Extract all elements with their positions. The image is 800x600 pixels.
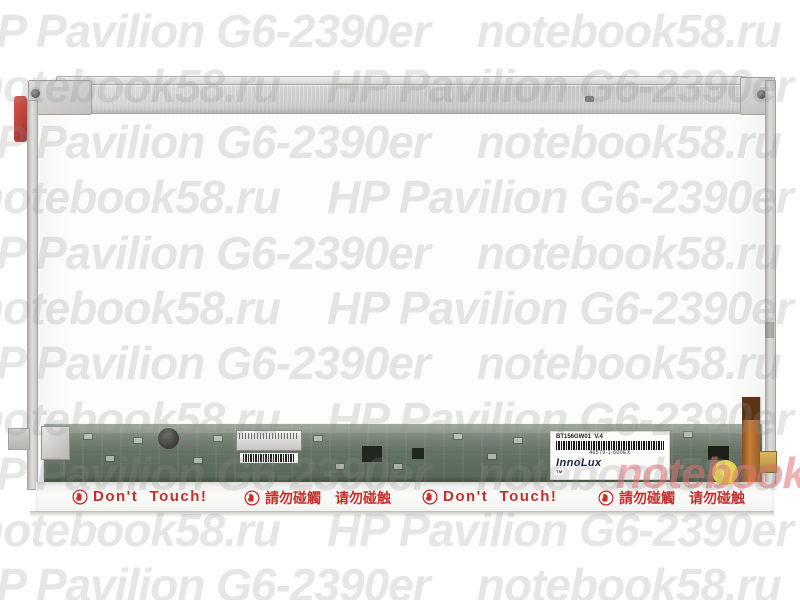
warning-text: Don't Touch! xyxy=(93,488,207,505)
left-mount-tab xyxy=(8,428,30,450)
dont-touch-hand-icon xyxy=(72,489,88,505)
panel-bottom-shadow xyxy=(30,511,774,517)
smd-pad xyxy=(514,438,522,443)
smd-pad xyxy=(106,456,114,461)
smd-pad xyxy=(488,454,496,459)
screw-hole-left-icon xyxy=(31,89,40,98)
smd-pad xyxy=(684,432,692,437)
smd-pad xyxy=(336,464,344,469)
smd-pad xyxy=(454,434,462,439)
smd-pad xyxy=(214,436,222,441)
warning-item: Don't Touch! xyxy=(72,488,207,505)
warning-item: Don't Touch! xyxy=(422,488,557,505)
dont-touch-hand-icon xyxy=(598,490,614,506)
smd-pad xyxy=(84,434,92,439)
coil-component xyxy=(158,428,179,449)
lvds-connector xyxy=(236,430,302,451)
rail-notch xyxy=(765,322,774,338)
emi-shield xyxy=(41,426,70,460)
ic-chip xyxy=(412,448,424,459)
lcd-panel-product-photo: BT156GW01 V.4 46579-1-600EX InnoLuxTM Do… xyxy=(0,0,800,600)
warning-item: 請勿碰觸 请勿碰触 xyxy=(244,488,391,508)
watermark-row: HP Pavilion G6-2390er notebook58.ru xyxy=(0,8,781,54)
label-model-text: BT156GW01 V.4 xyxy=(556,434,664,440)
bracket-smudge xyxy=(585,96,594,102)
watermark-row: HP Pavilion G6-2390er notebook58.ru xyxy=(0,562,781,600)
smd-pad xyxy=(394,464,402,469)
warning-text: 請勿碰觸 请勿碰触 xyxy=(265,488,391,508)
top-bracket-bar xyxy=(38,84,764,114)
smd-pad xyxy=(314,436,322,441)
warning-text: Don't Touch! xyxy=(443,488,557,505)
pcb-barcode-sticker xyxy=(240,453,298,463)
ic-chip xyxy=(362,446,382,462)
dont-touch-hand-icon xyxy=(244,490,260,506)
side-rail-right xyxy=(765,80,776,484)
dont-touch-hand-icon xyxy=(422,489,438,505)
red-watermark-text: notebook58.ru xyxy=(616,452,800,496)
smd-pad xyxy=(194,458,202,463)
red-bumper xyxy=(14,96,27,142)
smd-pad xyxy=(134,438,142,443)
